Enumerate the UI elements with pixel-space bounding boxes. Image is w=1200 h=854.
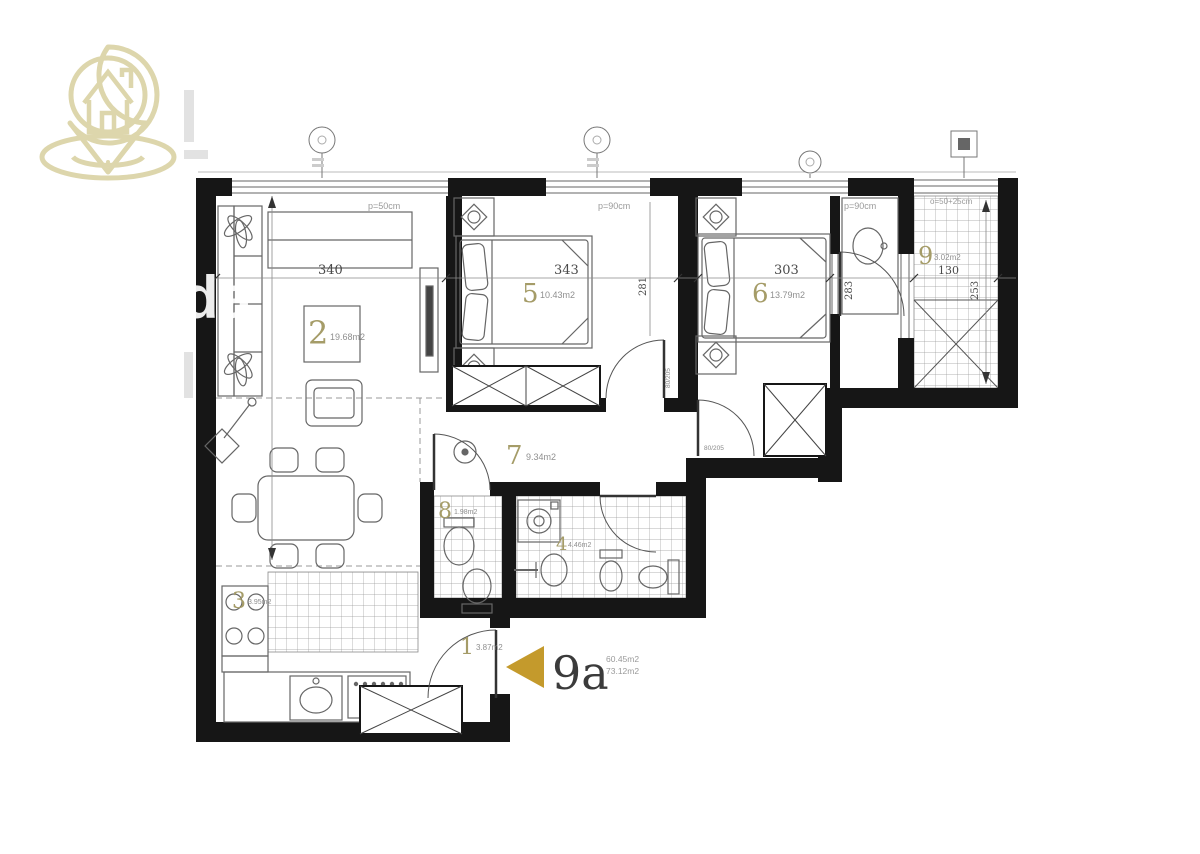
- window-label-bed6: p=90cm: [844, 201, 876, 211]
- room9-number: 9: [918, 242, 933, 270]
- floor-plan-svg: 2 19.68m2 5 10.43m2 6 13.79m2 7 9.34m2 8…: [0, 0, 1200, 854]
- room4-number: 4: [556, 534, 567, 555]
- door-size-label: 80/205: [704, 445, 724, 452]
- ceiling-light-icon: [454, 441, 476, 463]
- room5-number: 5: [522, 279, 539, 309]
- unit-label: 9a 60.45m2 73.12m2: [506, 646, 639, 700]
- plant-icon: [221, 350, 255, 387]
- dim-bed5-height: 281: [638, 277, 649, 296]
- entrance-arrow-icon: [506, 646, 544, 688]
- room6-number: 6: [752, 279, 769, 309]
- dim-terrace-height: 253: [970, 281, 981, 300]
- living-window: [232, 181, 448, 193]
- room3-area: 3.95m2: [248, 599, 271, 606]
- floor-plan-screenshot: 2 19.68m2 5 10.43m2 6 13.79m2 7 9.34m2 8…: [0, 0, 1200, 854]
- door-size-label: 80/205: [665, 368, 672, 388]
- bedroom5-window: [546, 181, 650, 193]
- grid-marker: [309, 127, 335, 178]
- grid-markers: [309, 127, 977, 178]
- dashed-partitions: [216, 398, 446, 566]
- armchair-icon: [306, 380, 362, 426]
- room8-number: 8: [438, 499, 452, 524]
- room6-area: 13.79m2: [770, 290, 805, 300]
- grid-marker-square: [951, 131, 977, 178]
- kitchen-sink-icon: [290, 676, 342, 720]
- tv-unit-icon: [420, 268, 438, 372]
- room5-area: 10.43m2: [540, 290, 575, 300]
- room2-area: 19.68m2: [330, 332, 365, 342]
- dim-terrace-width: 130: [938, 264, 959, 277]
- room9-area: 3.02m2: [934, 253, 961, 262]
- window-label-terrace: o=50+25cm: [930, 197, 973, 206]
- grid-marker: [799, 151, 821, 178]
- window-label-living: p=50cm: [368, 201, 400, 211]
- grid-marker: [584, 127, 610, 178]
- dim-living-width: 340: [318, 263, 343, 278]
- room7-number: 7: [506, 441, 523, 471]
- window-label-bed5: p=90cm: [598, 201, 630, 211]
- location-pin-icon: [70, 47, 157, 172]
- dim-bed5-width: 343: [554, 263, 579, 278]
- watermark-text: da: [182, 264, 253, 331]
- shaft-box: [360, 686, 462, 734]
- terrace-floor-tiles: [914, 196, 998, 388]
- dim-bed6-width: 303: [774, 263, 799, 278]
- kitchen-cabinet: [222, 656, 268, 672]
- room4-area: 4.46m2: [568, 542, 591, 549]
- dining-table-icon: [232, 448, 382, 568]
- corridor-door-opening: [832, 254, 838, 314]
- room1-area: 3.87m2: [476, 643, 503, 652]
- living-room-furniture: [205, 206, 438, 568]
- bedroom6-window: [742, 181, 848, 193]
- room8-area: 1.98m2: [454, 509, 477, 516]
- plant-icon: [221, 212, 255, 249]
- bedroom5-door: [606, 340, 664, 398]
- kitchen-counter-tiles: [268, 572, 418, 652]
- wardrobe-box: [452, 366, 600, 406]
- unit-area-net: 60.45m2: [606, 654, 639, 664]
- agency-logo: [42, 47, 174, 178]
- unit-area-gross: 73.12m2: [606, 666, 639, 676]
- dim-bed6-height: 283: [844, 281, 855, 300]
- room7-area: 9.34m2: [526, 452, 556, 462]
- terrace-door: [901, 254, 909, 338]
- unit-number: 9a: [552, 646, 609, 700]
- room2-number: 2: [308, 314, 328, 352]
- nightstand-icon: [696, 198, 736, 236]
- terrace-parapet: [914, 180, 998, 193]
- wardrobe-box: [764, 384, 826, 456]
- room1-number: 1: [460, 635, 474, 660]
- room3-number: 3: [232, 589, 246, 614]
- tiled-floors: [268, 196, 998, 652]
